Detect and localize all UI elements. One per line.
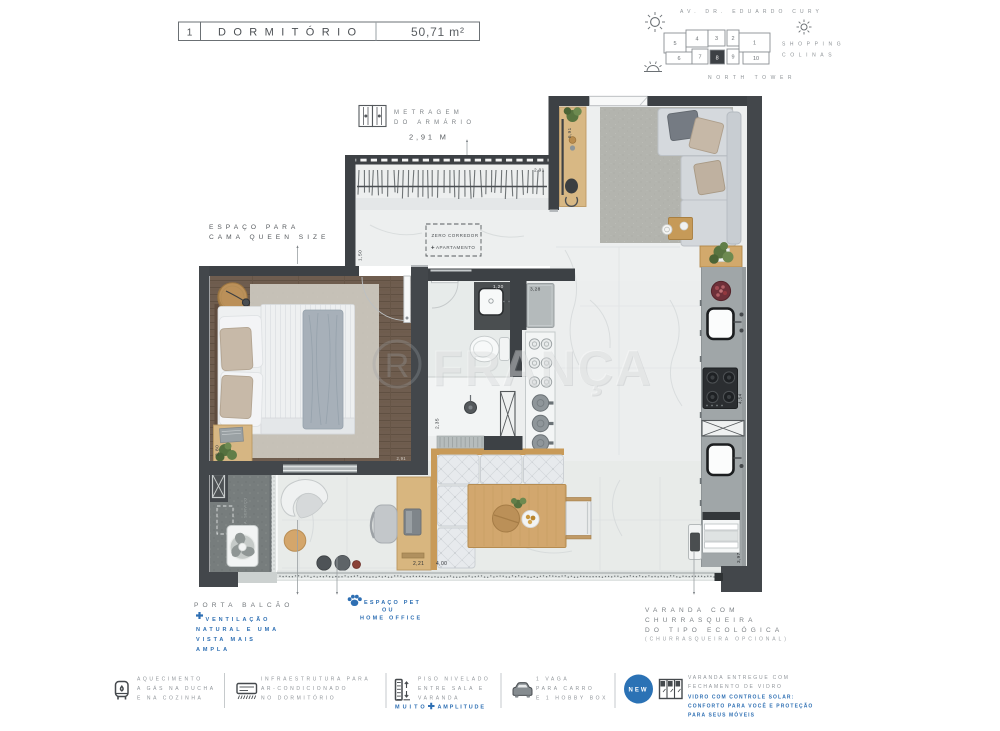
svg-text:5: 5 <box>673 41 676 47</box>
svg-text:7: 7 <box>698 55 701 61</box>
svg-text:E NA COZINHA: E NA COZINHA <box>137 696 203 702</box>
svg-text:NO DORMITÓRIO: NO DORMITÓRIO <box>261 695 336 702</box>
svg-text:4,54: 4,54 <box>738 393 743 404</box>
svg-text:NORTH TOWER: NORTH TOWER <box>708 75 796 81</box>
svg-text:1 VAGA: 1 VAGA <box>536 677 569 683</box>
svg-text:DORMITÓRIO: DORMITÓRIO <box>218 26 364 39</box>
svg-text:3,97: 3,97 <box>736 552 741 563</box>
svg-text:2,91: 2,91 <box>397 456 407 461</box>
svg-text:HOME OFFICE: HOME OFFICE <box>360 616 422 622</box>
svg-text:(CHURRASQUEIRA OPCIONAL): (CHURRASQUEIRA OPCIONAL) <box>645 637 789 643</box>
svg-text:SHOPPING: SHOPPING <box>782 42 845 48</box>
svg-text:AR-CONDICIONADO: AR-CONDICIONADO <box>261 686 348 692</box>
svg-text:1,20: 1,20 <box>493 284 504 290</box>
svg-text:ESPAÇO PET: ESPAÇO PET <box>364 600 421 606</box>
svg-text:FRANÇA: FRANÇA <box>432 340 652 396</box>
svg-text:ESPAÇO PARA: ESPAÇO PARA <box>209 224 299 231</box>
svg-text:VARANDA COM: VARANDA COM <box>645 607 739 614</box>
svg-text:CHURRASQUEIRA: CHURRASQUEIRA <box>645 617 757 624</box>
svg-text:4,00: 4,00 <box>436 561 447 567</box>
svg-text:2,35: 2,35 <box>435 418 441 429</box>
svg-text:3: 3 <box>715 36 718 42</box>
svg-text:+: + <box>431 246 435 252</box>
svg-text:METRAGEM: METRAGEM <box>394 110 463 116</box>
svg-text:FECHAMENTO DE VIDRO: FECHAMENTO DE VIDRO <box>688 684 783 690</box>
svg-text:4: 4 <box>695 37 698 43</box>
svg-text:DO TIPO ECOLÓGICA: DO TIPO ECOLÓGICA <box>645 625 783 634</box>
svg-text:6: 6 <box>677 56 680 62</box>
svg-text:DO ARMÁRIO: DO ARMÁRIO <box>394 119 475 126</box>
svg-text:E 1 HOBBY BOX: E 1 HOBBY BOX <box>536 696 608 702</box>
svg-text:NATURAL E UMA: NATURAL E UMA <box>196 627 279 633</box>
svg-text:VARANDA ENTREGUE COM: VARANDA ENTREGUE COM <box>688 675 790 681</box>
svg-text:2,91 M: 2,91 M <box>409 133 449 142</box>
svg-text:COLINAS: COLINAS <box>782 53 836 59</box>
svg-text:1,50: 1,50 <box>358 250 364 261</box>
svg-text:NEW: NEW <box>629 688 649 694</box>
svg-text:CAMA QUEEN SIZE: CAMA QUEEN SIZE <box>209 234 329 241</box>
svg-text:2: 2 <box>731 36 734 42</box>
svg-text:AV. DR. EDUARDO CURY: AV. DR. EDUARDO CURY <box>680 9 823 15</box>
svg-text:8: 8 <box>716 56 719 62</box>
svg-text:AQUECIMENTO: AQUECIMENTO <box>137 677 203 683</box>
svg-text:2,80: 2,80 <box>215 445 221 456</box>
svg-text:AMPLITUDE: AMPLITUDE <box>438 705 486 711</box>
svg-text:VISTA MAIS: VISTA MAIS <box>196 637 256 643</box>
svg-text:9: 9 <box>731 55 734 61</box>
svg-text:ENTRE SALA E: ENTRE SALA E <box>418 686 485 692</box>
svg-text:VENTILAÇÃO: VENTILAÇÃO <box>206 616 271 623</box>
svg-text:INFRAESTRUTURA PARA: INFRAESTRUTURA PARA <box>261 677 370 683</box>
svg-text:VIDRO COM CONTROLE SOLAR:: VIDRO COM CONTROLE SOLAR: <box>688 695 794 701</box>
svg-text:CONFORTO PARA VOCÊ E PROTEÇÃO: CONFORTO PARA VOCÊ E PROTEÇÃO <box>688 702 813 710</box>
svg-text:ZERO CORREDOR: ZERO CORREDOR <box>432 233 479 238</box>
svg-text:PORTA BALCÃO: PORTA BALCÃO <box>194 600 294 609</box>
svg-text:OU: OU <box>382 608 395 614</box>
svg-text:PARA CARRO: PARA CARRO <box>536 686 594 692</box>
svg-text:A GÁS NA DUCHA: A GÁS NA DUCHA <box>137 685 216 692</box>
svg-text:A. SERVIÇO: A. SERVIÇO <box>244 497 248 524</box>
svg-text:1: 1 <box>187 28 193 39</box>
svg-text:R: R <box>385 347 410 385</box>
svg-text:PISO NIVELADO: PISO NIVELADO <box>418 677 490 683</box>
svg-text:VARANDA: VARANDA <box>418 696 460 702</box>
svg-text:2,21: 2,21 <box>413 561 424 567</box>
svg-text:MUITO: MUITO <box>395 705 428 711</box>
svg-text:50,71 m²: 50,71 m² <box>411 25 465 39</box>
svg-text:3,28: 3,28 <box>530 287 541 293</box>
svg-text:AMPLA: AMPLA <box>196 647 230 653</box>
svg-text:6,91: 6,91 <box>567 127 572 138</box>
svg-text:10: 10 <box>753 56 759 62</box>
svg-text:APARTAMENTO: APARTAMENTO <box>436 245 475 250</box>
svg-text:1: 1 <box>753 41 756 47</box>
svg-text:2,91: 2,91 <box>534 168 545 174</box>
svg-text:PARA SEUS MÓVEIS: PARA SEUS MÓVEIS <box>688 711 755 719</box>
